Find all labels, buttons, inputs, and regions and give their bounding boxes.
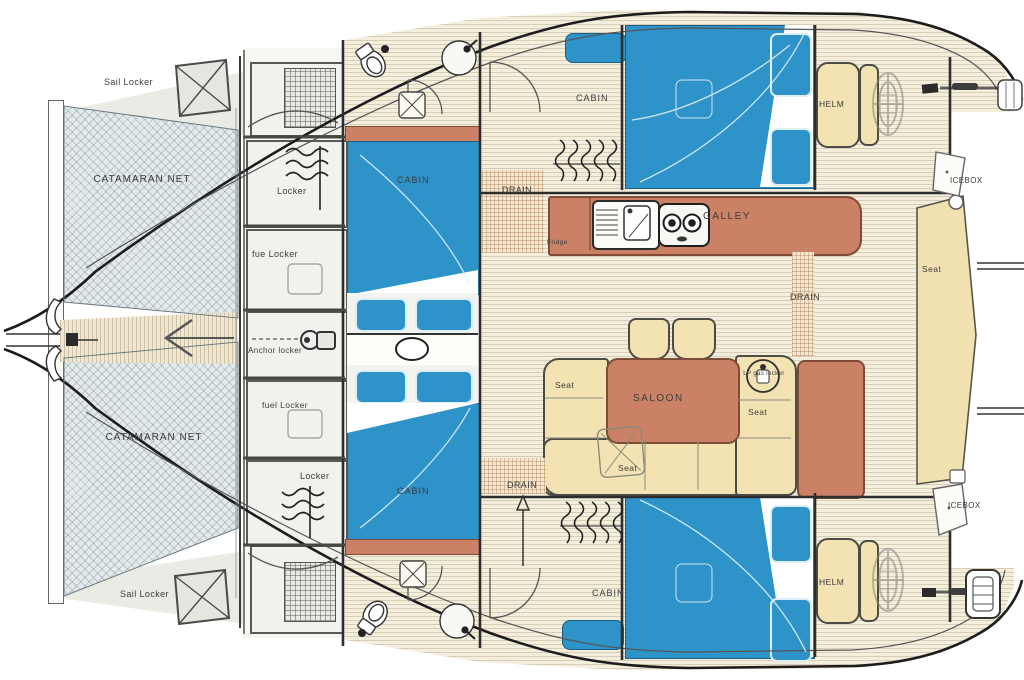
label-fue-locker: fue Locker xyxy=(252,249,298,259)
label-sail-locker-top: Sail Locker xyxy=(104,77,153,87)
saloon-stool xyxy=(628,318,670,360)
label-helm-top: HELM xyxy=(819,99,844,109)
label-helm-bottom: HELM xyxy=(819,577,844,587)
label-drain-bottom: DRAIN xyxy=(507,480,537,490)
label-drain-top: DRAIN xyxy=(502,185,532,195)
label-fridge: Fridge xyxy=(547,239,568,246)
drain-area-top xyxy=(482,170,544,253)
pillow xyxy=(770,505,812,563)
label-catamaran-net-top: CATAMARAN NET xyxy=(76,174,208,185)
label-lp-gas-locker: LP gas locker xyxy=(736,371,792,377)
helm-side-seat-top xyxy=(859,64,879,146)
label-cabin-mid-fwd: CABIN xyxy=(397,175,430,185)
pillow xyxy=(415,298,473,332)
label-cabin-hull-bottom: CABIN xyxy=(592,588,625,598)
fuel-locker-room xyxy=(246,380,348,460)
label-seat-left: Seat xyxy=(555,380,574,390)
bed-mid-forward xyxy=(347,141,480,295)
label-fuel-locker: fuel Locker xyxy=(262,400,308,410)
hatch-panel-top xyxy=(565,33,627,63)
deck-grating-fwd xyxy=(284,68,336,128)
deck-grating-aft xyxy=(284,562,336,622)
label-seat-right: Seat xyxy=(748,407,767,417)
label-saloon: SALOON xyxy=(633,393,684,404)
label-galley: GALLEY xyxy=(703,211,751,222)
pillow xyxy=(770,128,812,186)
drain-area-mid xyxy=(792,252,814,356)
pillow xyxy=(415,370,473,404)
helm-side-seat-bottom xyxy=(859,540,879,622)
label-locker-aft: Locker xyxy=(300,471,329,481)
mid-cabin-shelf xyxy=(347,333,478,369)
hatch-panel-bottom xyxy=(562,620,624,650)
pillow xyxy=(355,298,407,332)
pillow xyxy=(770,33,812,97)
label-drain-mid: DRAIN xyxy=(790,292,820,302)
label-seat-aft-deck: Seat xyxy=(922,264,941,274)
label-catamaran-net-bottom: CATAMARAN NET xyxy=(88,432,220,443)
nav-counter xyxy=(797,360,865,499)
label-locker-fwd: Locker xyxy=(277,186,306,196)
pillow xyxy=(770,598,812,662)
pillow xyxy=(355,370,407,404)
headboard-strip-top xyxy=(345,126,481,142)
catamaran-floor-plan: Sail Locker CATAMARAN NET Locker fue Loc… xyxy=(0,0,1024,680)
fue-locker-room xyxy=(246,229,348,311)
label-icebox-top: ICEBOX xyxy=(950,176,983,185)
label-icebox-bottom: ICEBOX xyxy=(948,501,981,510)
label-sail-locker-bottom: Sail Locker xyxy=(120,589,169,599)
hanging-locker-fwd xyxy=(246,140,348,228)
aft-beam-lines xyxy=(977,263,1024,414)
headboard-strip-bottom xyxy=(345,539,481,555)
label-seat-front: Seat xyxy=(618,463,637,473)
label-cabin-mid-aft: CABIN xyxy=(397,486,430,496)
label-cabin-hull-top: CABIN xyxy=(576,93,609,103)
label-anchor-locker: Anchor locker xyxy=(248,346,302,355)
galley-stove xyxy=(658,203,710,247)
hanging-locker-aft xyxy=(246,460,348,546)
galley-sink xyxy=(592,200,660,250)
saloon-stool xyxy=(672,318,716,360)
